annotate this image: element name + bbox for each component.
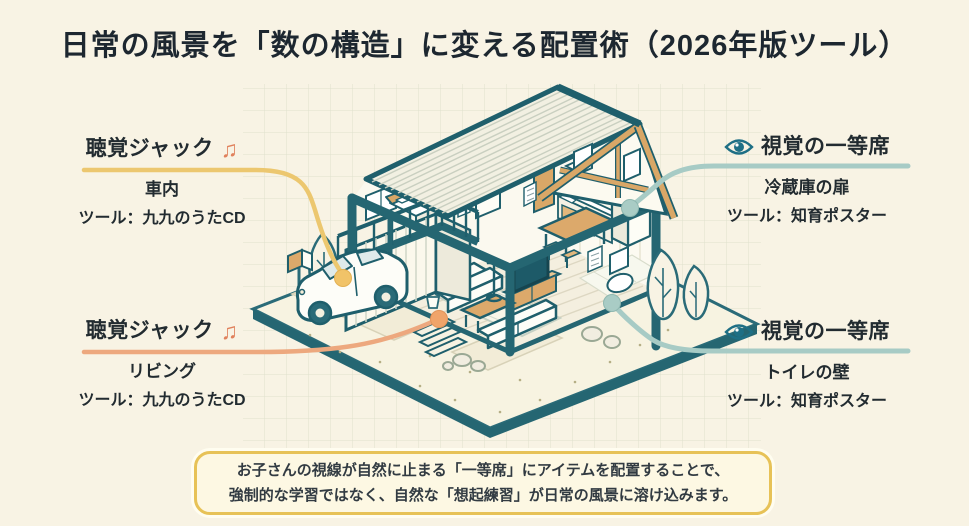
annotation-visual-toilet: 視覚の一等席 トイレの壁 ツール：知育ポスター: [696, 318, 918, 411]
house-illustration: [0, 0, 969, 526]
annotation-audio-car: 聴覚ジャック ♫ 車内 ツール：九九のうたCD: [58, 135, 266, 228]
target-dot-living: [431, 311, 448, 328]
annotation-heading: 聴覚ジャック ♫: [58, 135, 266, 163]
summary-note-line1: お子さんの視線が自然に止まる「一等席」にアイテムを配置することで、: [237, 458, 729, 483]
annotation-heading-text: 視覚の一等席: [761, 133, 890, 161]
annotation-location: 車内: [58, 175, 266, 200]
annotation-location: リビング: [58, 357, 266, 382]
annotation-location: 冷蔵庫の扉: [696, 173, 918, 198]
summary-note-box: お子さんの視線が自然に止まる「一等席」にアイテムを配置することで、 強制的な学習…: [194, 451, 772, 515]
eye-icon: [724, 137, 754, 157]
annotation-visual-fridge: 視覚の一等席 冷蔵庫の扉 ツール：知育ポスター: [696, 133, 918, 226]
annotation-heading: 聴覚ジャック ♫: [58, 317, 266, 345]
eye-icon: [724, 322, 754, 342]
target-dot-car: [335, 270, 352, 287]
annotation-tool: ツール：九九のうたCD: [58, 386, 266, 410]
annotation-tool: ツール：知育ポスター: [696, 387, 918, 411]
infographic-canvas: 日常の風景を「数の構造」に変える配置術（2026年版ツール） 聴覚ジャック ♫ …: [0, 0, 969, 526]
target-dot-fridge: [622, 200, 639, 217]
page-title: 日常の風景を「数の構造」に変える配置術（2026年版ツール）: [0, 22, 969, 64]
annotation-heading-text: 聴覚ジャック: [86, 135, 214, 163]
annotation-heading-text: 聴覚ジャック: [86, 317, 214, 345]
annotation-location: トイレの壁: [696, 358, 918, 383]
annotation-tool: ツール：九九のうたCD: [58, 204, 266, 228]
music-note-icon: ♫: [221, 320, 239, 343]
annotation-heading: 視覚の一等席: [696, 318, 918, 346]
summary-note-line2: 強制的な学習ではなく、自然な「想起練習」が日常の風景に溶け込みます。: [229, 483, 738, 508]
annotation-audio-living: 聴覚ジャック ♫ リビング ツール：九九のうたCD: [58, 317, 266, 410]
annotation-heading: 視覚の一等席: [696, 133, 918, 161]
annotation-heading-text: 視覚の一等席: [761, 318, 890, 346]
target-dot-toilet: [604, 295, 621, 312]
music-note-icon: ♫: [221, 138, 239, 161]
annotation-tool: ツール：知育ポスター: [696, 202, 918, 226]
